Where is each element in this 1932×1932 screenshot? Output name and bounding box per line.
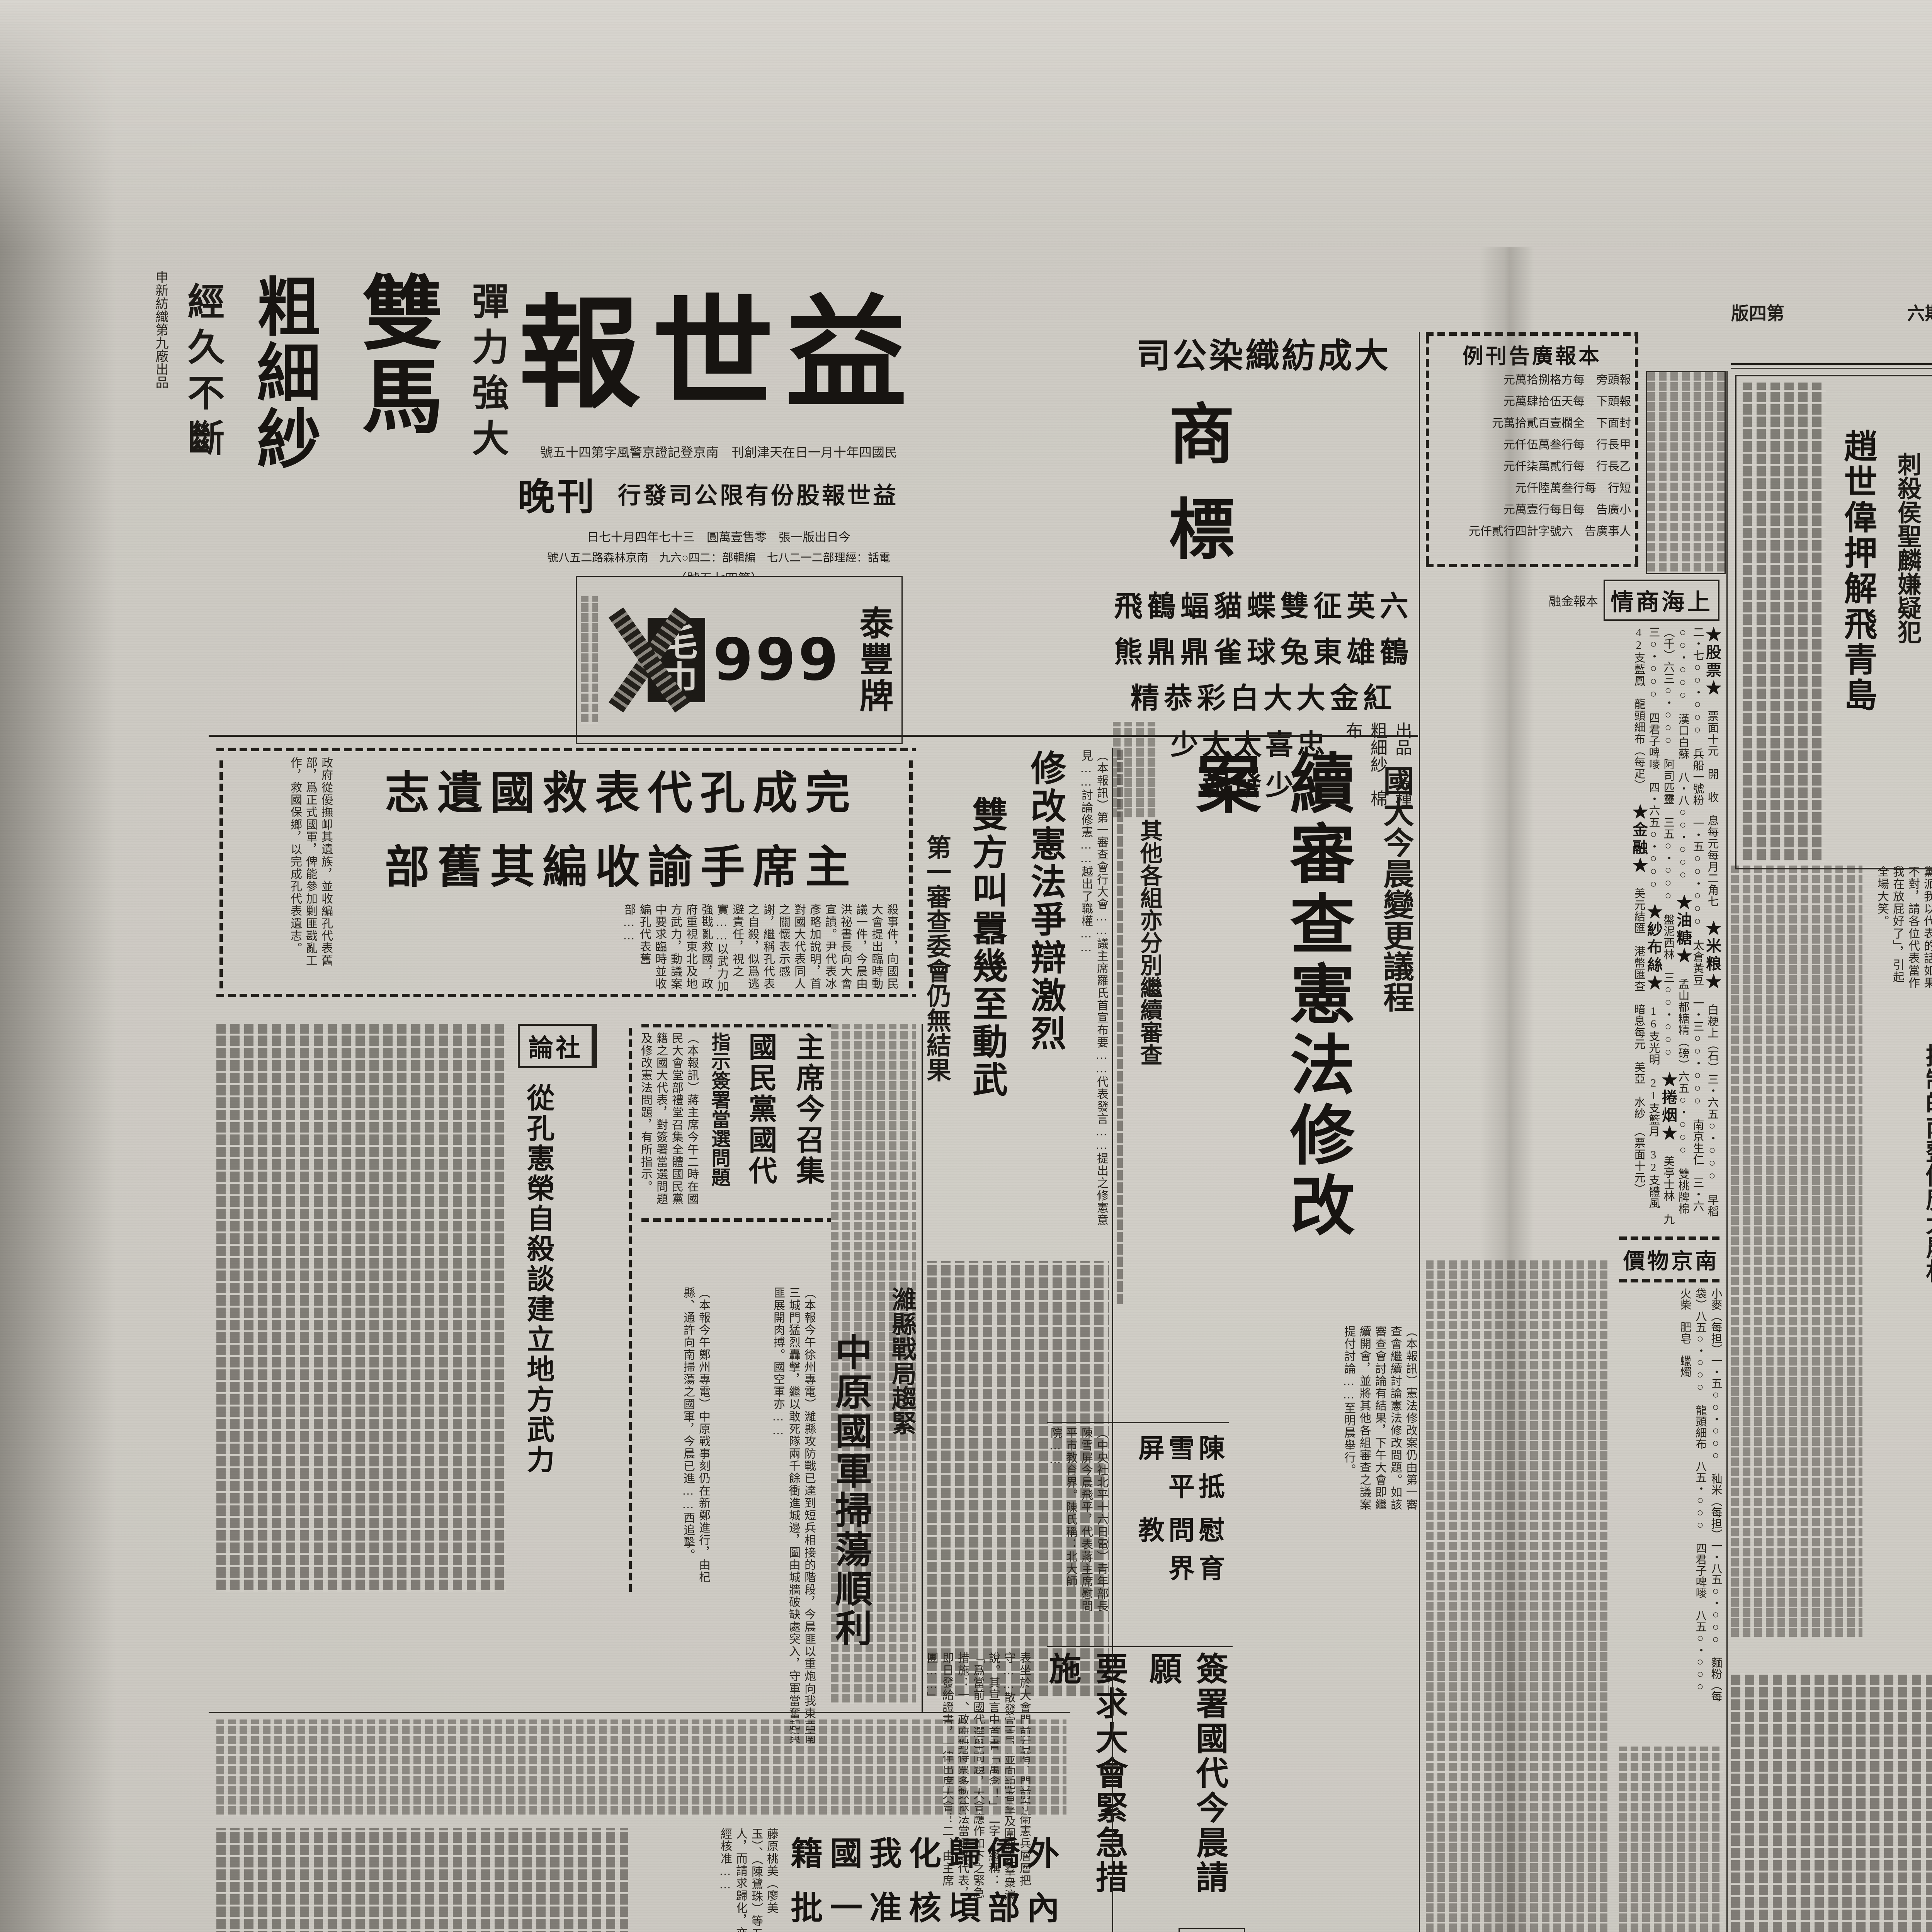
page-number-label: 第四版 (1731, 299, 1784, 325)
story-headline: 修改憲法爭辯激烈 (1020, 750, 1071, 1090)
publisher-line: 益世報股份有限公司發行 (597, 477, 920, 510)
body-text-columns (1743, 383, 1826, 862)
story-headline: 續審查憲法修改案 (1175, 750, 1363, 1306)
newspaper-page: 彈力強大 雙馬 粗細紗 經久不斷 申新紡織第九廠出品 益世報 民國四年十月一日在… (0, 0, 1932, 1932)
story-cisha: 刺殺侯聖麟嫌疑犯 趙世偉押解飛青島 (1735, 375, 1932, 869)
ad-rates-row: 小廣告 每日每行壹萬元 (1433, 499, 1631, 521)
ad-rates-row: 甲長行 每行叁萬伍仟元 (1433, 434, 1631, 456)
weekday-label: 星期六 (1907, 299, 1932, 325)
body-text-columns (1731, 866, 1862, 1638)
ad-title: 商標 (1113, 381, 1414, 571)
ad-brand-list: 六英征雙蝶貓蝠鶴飛 (1113, 583, 1414, 624)
story-kicker: 刺殺侯聖麟嫌疑犯 (1889, 452, 1924, 800)
story-subhead: 指示簽署當選問題 (706, 1032, 733, 1202)
body-text-columns (216, 1719, 1066, 1816)
story-chen: 陳雪屏抵平 慰問教育界 （中央社北平十六日電）青年部長陳雪屏今晨飛平，代表蔣主席… (1047, 1422, 1229, 1638)
story-qianshu2: 簽署國代今晨請願 要求大會緊急措施 表坐於大會門前石階，門前守衛憲兵層層把守……… (1047, 1646, 1233, 1917)
ad-rates-row: 乙長行 每行貳萬柒仟元 (1433, 456, 1631, 478)
market-nanjing: 南京物價 小麥（每担）一・五○○・○○○ 秈米（每担）一・八五○・○○○ 麵粉（… (1619, 1236, 1723, 1731)
story-headline: 雙方叫囂幾至動武 (961, 796, 1013, 1136)
story-guoda: 國大今晨變更議程 續審查憲法修改案 其他各組亦分別繼續審查 （本報訊）憲法修改案… (1117, 750, 1418, 1515)
ad-shuangma: 彈力強大 雙馬 粗細紗 經久不斷 申新紡織第九廠出品 (216, 270, 514, 730)
section-body: 堂前交通，提出抗議，獲到幾聲倒彩下台……大家都說大炮今天跨了。樊鏡亭代表說：「我… (1874, 866, 1932, 989)
story-kicker: 國大今晨變更議程 (1373, 765, 1418, 1059)
registration-line: 民國四年十月一日在天津創刊 南京登記證京警風字第四十五號 (518, 442, 920, 461)
market-items: 小麥（每担）一・五○○・○○○ 秈米（每担）一・八五○・○○○ 麵粉（每袋）八五… (1619, 1288, 1723, 1713)
story-body: （本報訊）第一審查會行大會……議主席羅氏首宣布要……代表發言……提出之修憲意見…… (1078, 750, 1109, 1244)
story-subhead: 控制皖南整個廣大農村 (1918, 1043, 1932, 1337)
story-kicker: 濰縣戰局趨緊 (884, 1287, 920, 1464)
issue-line: 電話：經理部二一二八七 編輯部：二四○六九 南京林森路二五八號 (518, 549, 920, 565)
ad-brand-name: 雙馬 (336, 270, 453, 730)
market-title: 上海商情 (1604, 580, 1719, 621)
ad-product-name: 粗細紗 (236, 274, 329, 730)
body-text-columns (216, 1828, 628, 1932)
subscription-notice-box (1646, 371, 1726, 574)
story-headline: 簽署國代今晨請願 (1139, 1652, 1233, 1899)
market-title: 南京物價 (1619, 1244, 1723, 1275)
story-headline: 中原國軍掃蕩順利 (823, 1333, 877, 1681)
market-shanghai: 上海商情 本報金融 ★股票★ 票面十元 開 收 息每元每月二角七 ★米粮★ 白粳… (1426, 580, 1719, 1233)
ad-brand-list: 鶴雄東兔球雀鼎鼎熊 (1113, 629, 1414, 670)
story-headline: 主席今召集 (787, 1032, 828, 1187)
ad-company-name: 大成紡織染公司 (1113, 328, 1414, 378)
body-text-columns (1117, 750, 1123, 1306)
story-headline: 內部頃核准一批 (791, 1882, 1066, 1929)
body-text-columns (1731, 1673, 1932, 1932)
story-subhead: 其他各組亦分別繼續審查 (1133, 819, 1165, 1128)
body-text-columns (1426, 1260, 1607, 1932)
ad-rates-row: 報頭旁 每方格捌拾萬元 (1433, 369, 1631, 391)
ad-number-999: 999 (713, 626, 841, 694)
section-guoda-huaxu: 國大◎花絮 堂前交通，提出抗議，獲到幾聲倒彩下台……大家都說大炮今天跨了。樊鏡亭… (1874, 866, 1932, 993)
market-section-items: 美元結匯 港幣匯查 暗息每元 美亞 水紗 （票面十元） (1633, 888, 1645, 1195)
ad-slogan: 彈力強大 (460, 282, 514, 730)
issue-line: 今日出版一張 零售壹萬圓 三十七年四月十七日 (518, 527, 920, 545)
ad-rates-row: 短行 每行叁萬陸仟元 (1433, 478, 1631, 499)
story-wannan: 且後，皖南第一流匪首熊兆仁，派倪匪南山負責成立「黃西大隊」，目的在安徽的休甯、浙… (1886, 997, 1932, 1391)
market-section-head: ★股票★ (1704, 626, 1721, 697)
towel-x-graphic (605, 602, 640, 718)
story-headline: 外僑歸化我國籍 (791, 1828, 1066, 1874)
ad-slogan: 經久不斷 (176, 282, 230, 730)
editorial-headline: 從孔憲榮自殺談建立地方武力 (518, 1083, 558, 1578)
market-section-head: ★金融★ (1630, 804, 1648, 875)
story-headline: 陳雪屏抵平 (1117, 1427, 1229, 1503)
evening-edition-mark: 晚刊 (518, 467, 597, 520)
ad-rates-row: 報頭下 每天伍拾肆萬元 (1433, 391, 1631, 413)
body-text-columns (1619, 1747, 1723, 1932)
market-section-head: ★米粮★ (1704, 920, 1721, 991)
ad-maker: 申新紡織第九廠出品 (152, 270, 169, 730)
ad-rates-row: 人事廣告 六號字計四行貳仟元 (1433, 521, 1631, 543)
ad-brand-name: 泰豐牌 (849, 605, 898, 714)
story-waiqiao: 外僑歸化我國籍 內部頃核准一批 藤原桃美（廖美玉）、（陳鷺珠）等五人，而請求歸化… (216, 1828, 1066, 1932)
story-headline: 趙世偉押解飛青島 (1833, 429, 1882, 854)
story-body: （本報訊）蔣主席今午二時在國民大會堂部禮堂召集全體國民黨籍之國大代表，對簽署當選… (638, 1032, 699, 1210)
story-body: 藤原桃美（廖美玉）、（陳鷺珠）等五人，而請求歸化，亦經核准…… (640, 1828, 779, 1932)
ad-small-print (581, 596, 598, 724)
scan-edge-top (0, 0, 1932, 247)
newspaper-title: 益世報 (518, 255, 920, 431)
ad-taifeng: 泰豐牌 999 毛巾 (576, 576, 903, 744)
ad-dacheng: 大成紡織染公司 商標 六英征雙蝶貓蝠鶴飛 鶴雄東兔球雀鼎鼎熊 紅金大大白彩恭精 … (1113, 328, 1414, 730)
scan-edge-left (0, 0, 116, 1932)
market-section-head: ★紗布絲★ (1645, 903, 1662, 992)
editorial-body-columns (216, 1024, 506, 1592)
ad-brand-list: 紅金大大白彩恭精 (1113, 675, 1414, 716)
market-section-head: ★捲烟★ (1660, 1071, 1677, 1143)
market-subtitle: 本報金融 (1549, 592, 1598, 609)
market-section-head: ★油糖★ (1674, 894, 1692, 965)
story-headline: 慰問教育界 (1117, 1509, 1229, 1585)
editorial-label: 社論 (518, 1024, 597, 1068)
ad-rates-box: 本報廣告刊例 報頭旁 每方格捌拾萬元 報頭下 每天伍拾肆萬元 封面下 全欄壹百貳… (1426, 332, 1638, 572)
ad-rates-row: 封面下 全欄壹百貳拾萬元 (1433, 413, 1631, 434)
story-body: （中央社北平十六日電）青年部長陳雪屏今晨飛平，代表蔣主席慰問平市教育界。陳氏稱：… (1047, 1427, 1109, 1612)
dateline-band: 中華民國三十七年四月十七日 南京 益世報 晚刊 ✿ 星期六 第四版 (1731, 267, 1932, 357)
ad-rates-title: 本報廣告刊例 (1433, 339, 1631, 369)
story-zhongyuan: （本報今午鄭州專電）中原戰事刻仍在新鄭進行，由杞縣、通許向南掃蕩之國軍，今晨已進… (641, 1287, 711, 1596)
story-headline: 主席手諭收編其舊部 (344, 831, 899, 896)
story-intro: 政府從優撫卹其遺族，並收編孔代表舊部，爲正式國軍，俾能參加剿匪戡亂工作，救國保鄉… (233, 757, 333, 981)
story-weixian: 濰縣戰局趨緊 中原國軍掃蕩順利 （本報今午徐州專電）濰縣攻防戰已達到短兵相接的階… (719, 1287, 920, 1766)
story-subhead: 第一審查委會仍無結果 (919, 835, 954, 1182)
story-headline: 國民黨國代 (740, 1032, 781, 1187)
story-dehui: 曇花一現的 德惠 (1179, 1928, 1245, 1932)
market-section-items: 票面十元 開 收 息每元每月二角七 (1706, 710, 1718, 907)
story-body: （本報今午徐州專電）濰縣攻防戰已達到短兵相接的階段，今晨匪以重炮向我東西南三城門… (719, 1287, 816, 1750)
story-body: 殺事件，向國民大會提出臨時動議一件，今晨由洪祕書長向大會宣讀。尹代表冰彥略加說明… (344, 903, 899, 996)
story-zhuxi: 主席今召集 國民黨國代 指示簽署當選問題 （本報訊）蔣主席今午二時在國民大會堂部… (641, 1024, 831, 1229)
story-headline: 完成孔代表救國遺志 (344, 757, 899, 821)
story-kong: 完成孔代表救國遺志 主席手諭收編其舊部 殺事件，向國民大會提出臨時動議一件，今晨… (216, 748, 916, 1010)
editorial: 社論 從孔憲榮自殺談建立地方武力 (518, 1024, 626, 1592)
